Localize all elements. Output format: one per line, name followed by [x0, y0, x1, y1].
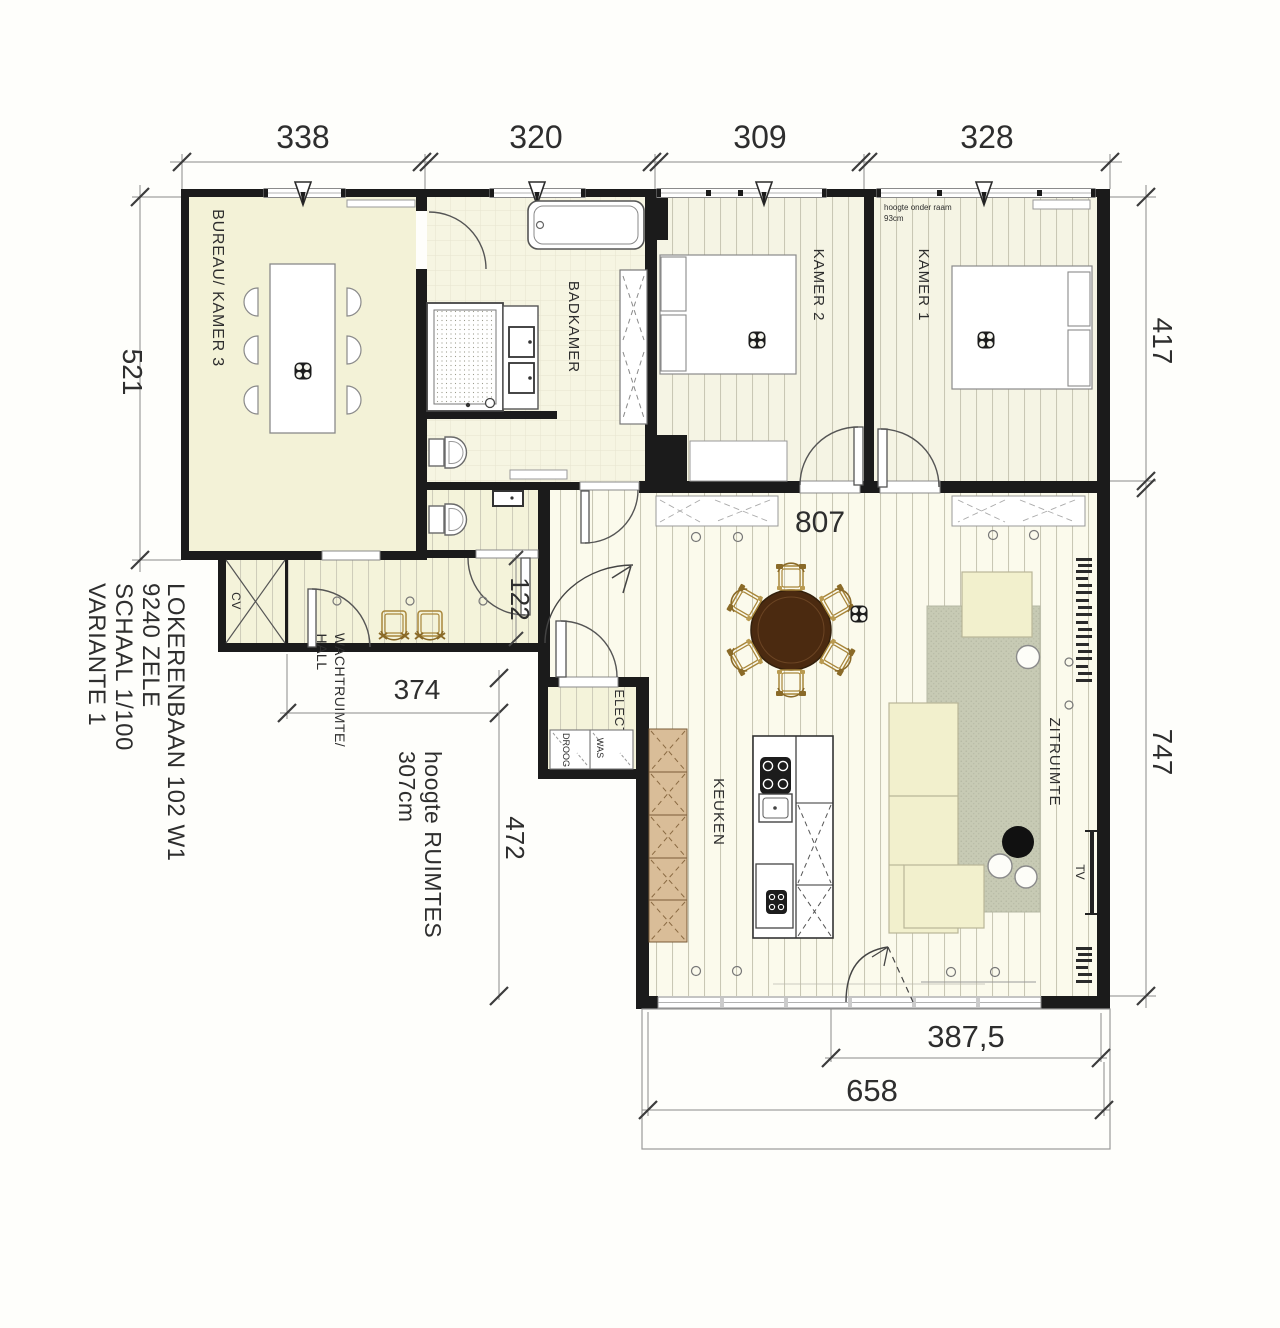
- svg-text:320: 320: [509, 119, 562, 155]
- svg-text:DROOG: DROOG: [561, 733, 571, 767]
- svg-text:BADKAMER: BADKAMER: [565, 281, 582, 373]
- svg-text:417: 417: [1147, 318, 1178, 365]
- svg-text:747: 747: [1147, 729, 1178, 776]
- svg-text:328: 328: [960, 119, 1013, 155]
- svg-text:VARIANTE 1: VARIANTE 1: [83, 583, 110, 726]
- svg-text:LOKERENBAAN 102 W1: LOKERENBAAN 102 W1: [162, 583, 189, 861]
- svg-text:KEUKEN: KEUKEN: [710, 778, 727, 846]
- svg-text:309: 309: [733, 119, 786, 155]
- svg-text:374: 374: [394, 674, 441, 705]
- svg-text:387,5: 387,5: [927, 1019, 1005, 1054]
- svg-text:521: 521: [117, 349, 148, 396]
- svg-text:338: 338: [276, 119, 329, 155]
- svg-text:hoogte onder raam: hoogte onder raam: [884, 203, 952, 212]
- svg-text:122: 122: [505, 577, 535, 620]
- svg-text:472: 472: [500, 816, 530, 859]
- svg-text:307cm: 307cm: [394, 751, 420, 823]
- svg-text:TV: TV: [1073, 864, 1087, 879]
- svg-text:93cm: 93cm: [884, 214, 904, 223]
- svg-text:KAMER 1: KAMER 1: [915, 249, 932, 322]
- svg-text:WAS: WAS: [595, 738, 605, 758]
- svg-text:WACHTRUIMTE/: WACHTRUIMTE/: [332, 633, 348, 747]
- svg-text:KAMER 2: KAMER 2: [810, 249, 827, 322]
- svg-text:807: 807: [795, 506, 845, 539]
- svg-text:9240 ZELE: 9240 ZELE: [137, 583, 164, 708]
- svg-text:658: 658: [846, 1073, 898, 1108]
- svg-text:hoogte RUIMTES: hoogte RUIMTES: [420, 751, 446, 938]
- svg-text:SCHAAL 1/100: SCHAAL 1/100: [110, 583, 137, 751]
- svg-text:HALL: HALL: [314, 633, 330, 670]
- svg-text:CV: CV: [229, 592, 243, 610]
- svg-text:ZITRUIMTE: ZITRUIMTE: [1046, 718, 1063, 807]
- svg-text:BUREAU/ KAMER 3: BUREAU/ KAMER 3: [209, 209, 226, 367]
